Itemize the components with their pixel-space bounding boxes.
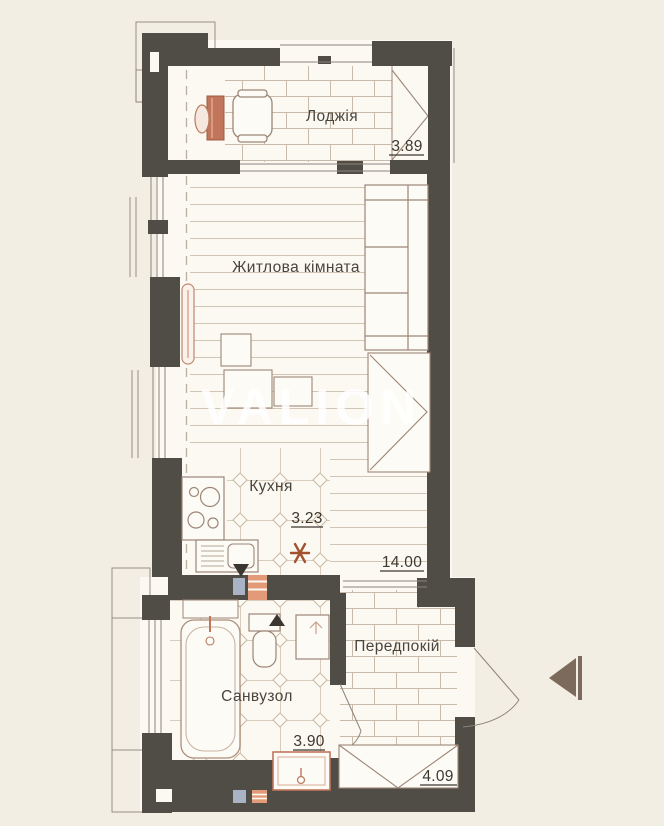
loggia-stool	[195, 105, 209, 133]
loggia-label: Лоджія	[306, 108, 358, 125]
window-mullion-tick	[148, 220, 168, 234]
living-room-area: 14.00	[382, 554, 422, 571]
kitchen-label: Кухня	[249, 478, 292, 495]
watermark: VALION	[201, 378, 461, 440]
bathtub	[181, 616, 240, 758]
living-sofa	[365, 185, 428, 350]
bathroom-shelf	[183, 600, 238, 618]
loggia-chair	[233, 90, 272, 142]
bathroom-sink	[273, 752, 330, 790]
kitchen-area: 3.23	[291, 510, 322, 527]
floor-plan-page: Лоджія 3.89 Житлова кімната 14.00 Кухня …	[0, 0, 664, 826]
kitchen-stove	[182, 477, 224, 540]
bathroom-area: 3.90	[293, 733, 324, 750]
washing-machine	[296, 615, 329, 659]
kitchen-sink	[196, 540, 258, 577]
bathroom-label: Санвузол	[221, 688, 293, 705]
hallway-label: Передпокій	[354, 638, 440, 655]
living-room-label: Житлова кімната	[232, 259, 360, 276]
hallway-area: 4.09	[422, 768, 453, 785]
radiator	[182, 284, 194, 364]
loggia-area: 3.89	[391, 138, 422, 155]
gallery-prev-arrow-icon[interactable]	[549, 656, 582, 700]
